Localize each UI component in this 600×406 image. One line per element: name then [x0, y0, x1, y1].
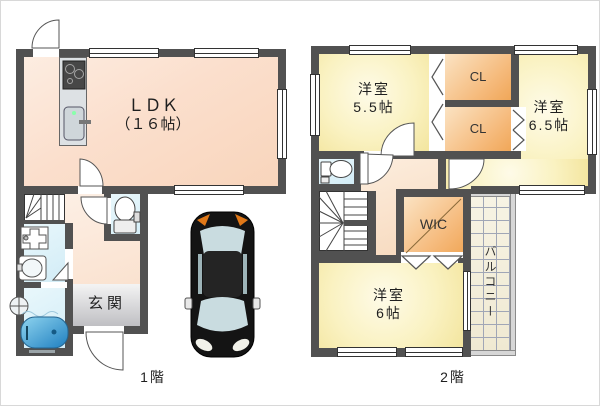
wall	[396, 189, 404, 255]
folding-door-icon	[430, 54, 445, 151]
ldk-label: ＬＤＫ （１６帖）	[93, 95, 213, 135]
wall	[319, 184, 361, 191]
kitchen-counter	[59, 57, 87, 146]
room-size: 6.5帖	[502, 117, 597, 135]
room-name: 洋室	[324, 81, 424, 99]
room-name: 洋室	[339, 287, 439, 305]
floorplan-canvas: ＬＤＫ （１６帖） 玄関 洋室 5.5帖 洋室 6.5帖 洋室 6帖 CL CL…	[0, 0, 600, 406]
door-opening	[33, 49, 59, 57]
window-icon	[349, 45, 411, 55]
closet2-label: CL	[456, 121, 500, 137]
ldk-size: （１６帖）	[93, 116, 213, 135]
room-size: 5.5帖	[324, 99, 424, 117]
floor2-caption: 2階	[429, 369, 477, 387]
window-icon	[89, 48, 159, 58]
wic-label: WIC	[406, 216, 461, 234]
wall	[140, 194, 148, 334]
staircase-1f	[24, 194, 65, 221]
room-toilet2	[319, 159, 354, 184]
door-opening	[65, 249, 73, 279]
wall	[65, 223, 73, 356]
window-icon	[514, 45, 578, 55]
door-opening	[364, 151, 388, 159]
window-icon	[337, 347, 397, 357]
bedroom-5_5-label: 洋室 5.5帖	[324, 81, 424, 116]
wall	[16, 186, 286, 194]
door-opening	[78, 186, 102, 194]
wall	[104, 234, 148, 241]
window-icon	[194, 48, 259, 58]
balcony-label: バルコニー	[482, 217, 497, 347]
staircase-2f	[319, 191, 368, 251]
room-size: 6帖	[339, 305, 439, 323]
car-icon	[185, 212, 260, 357]
window-icon	[310, 74, 320, 136]
wall	[311, 255, 401, 263]
folding-door-icon	[401, 252, 463, 258]
window-icon	[519, 185, 585, 195]
balcony-wall	[469, 350, 516, 356]
floor1-caption: 1階	[129, 369, 177, 387]
balcony-wall	[510, 191, 516, 356]
wall	[396, 189, 471, 197]
door-opening	[84, 326, 124, 334]
window-icon	[277, 89, 287, 159]
balcony-door	[463, 271, 471, 331]
door-opening	[104, 198, 111, 224]
room-name: 洋室	[502, 99, 597, 117]
window-icon	[405, 347, 463, 357]
door-opening	[41, 282, 67, 288]
ldk-name: ＬＤＫ	[93, 95, 213, 116]
wall	[368, 191, 376, 253]
genkan-label: 玄関	[76, 295, 138, 314]
wall	[16, 220, 65, 224]
closet1-label: CL	[456, 69, 500, 85]
wall	[438, 159, 446, 191]
bedroom-6-label: 洋室 6帖	[339, 287, 439, 322]
wall	[354, 159, 361, 185]
window-icon	[174, 185, 244, 195]
wall	[311, 151, 521, 159]
bedroom-6_5-label: 洋室 6.5帖	[502, 99, 597, 134]
wall	[16, 49, 24, 356]
